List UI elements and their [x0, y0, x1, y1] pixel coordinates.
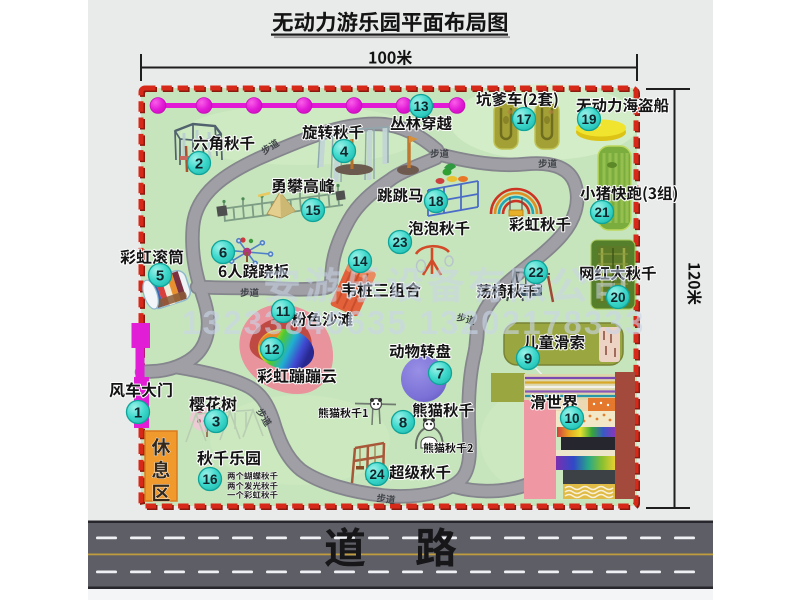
svg-text:13: 13	[413, 99, 429, 114]
svg-text:7: 7	[436, 365, 444, 382]
svg-text:16: 16	[202, 472, 218, 487]
svg-text:17: 17	[516, 112, 531, 127]
svg-text:20: 20	[610, 290, 625, 305]
svg-text:2: 2	[195, 155, 203, 172]
svg-text:22: 22	[528, 265, 543, 280]
svg-text:19: 19	[581, 112, 596, 127]
svg-text:3: 3	[212, 413, 220, 430]
svg-text:24: 24	[369, 467, 385, 482]
svg-text:12: 12	[264, 342, 279, 357]
svg-text:8: 8	[399, 414, 407, 431]
svg-text:6: 6	[219, 244, 227, 261]
svg-text:21: 21	[594, 205, 610, 220]
svg-text:4: 4	[340, 143, 349, 160]
svg-text:1: 1	[134, 404, 142, 421]
svg-text:14: 14	[352, 254, 368, 269]
svg-text:13233846635 13202178333: 13233846635 13202178333	[182, 304, 646, 341]
svg-text:10: 10	[564, 411, 579, 426]
svg-text:15: 15	[305, 203, 321, 218]
svg-text:11: 11	[276, 304, 291, 319]
svg-text:5: 5	[156, 267, 164, 284]
svg-text:18: 18	[428, 194, 444, 209]
svg-text:23: 23	[392, 235, 408, 250]
svg-text:9: 9	[524, 350, 532, 367]
